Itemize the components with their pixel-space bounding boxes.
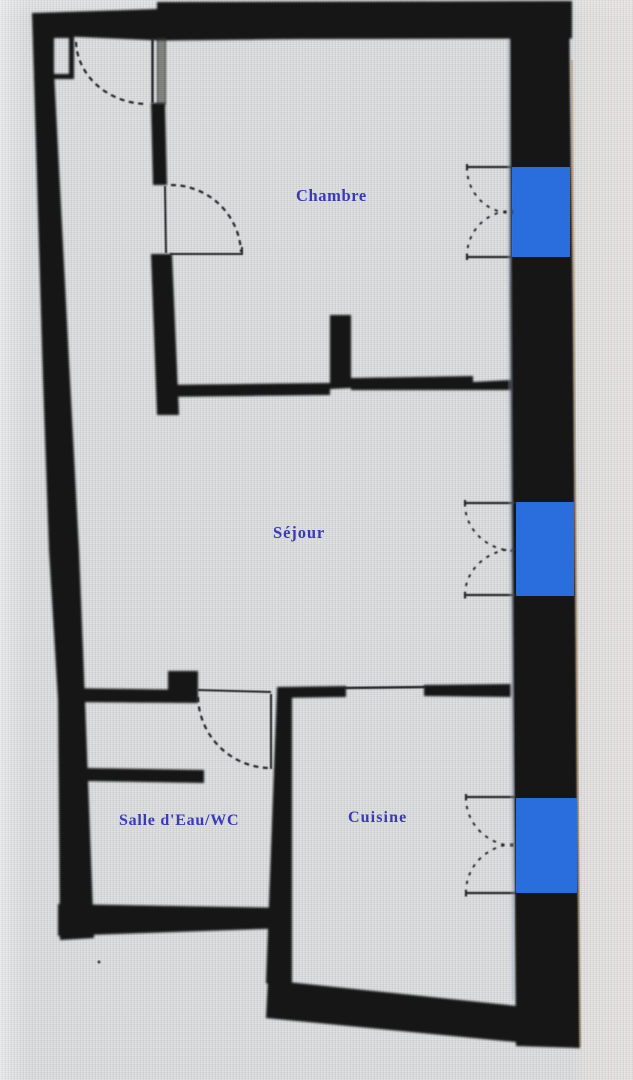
svg-text:Salle d'Eau/WC: Salle d'Eau/WC: [119, 812, 239, 829]
svg-text:Cuisine: Cuisine: [348, 809, 407, 826]
svg-text:Séjour: Séjour: [273, 523, 325, 542]
svg-text:Chambre: Chambre: [296, 186, 367, 205]
